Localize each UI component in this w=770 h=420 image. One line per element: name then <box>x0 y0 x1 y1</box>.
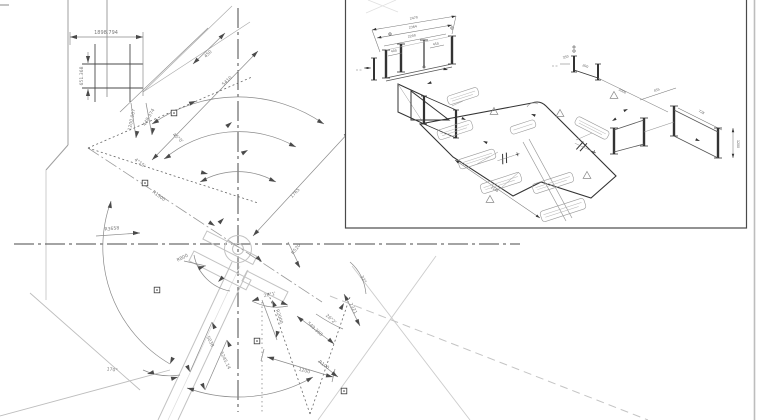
dim-label-2321: 2321 <box>347 302 358 315</box>
radius-label-2000: R2000 <box>274 309 284 325</box>
dim-label-height: 651.368 <box>79 66 85 85</box>
iso-inset-panel: 2470 2364 2200 400 450 2000 1148 1200 45… <box>346 0 747 228</box>
dim-label-1200-007: 1200.007 <box>127 108 137 131</box>
angle-label-32: 32° <box>358 275 367 285</box>
anchor-plate-detail <box>82 44 143 102</box>
radius-label-1500: R1500 <box>151 189 167 203</box>
dim-label-1200: 1200 <box>298 367 311 376</box>
structure-outline <box>46 0 107 300</box>
dim-label-5245: 5245.14 <box>218 351 232 371</box>
radius-label-520: R520 <box>290 243 302 256</box>
iso-dim-1200: 1200 <box>736 140 740 148</box>
dimension-lines <box>70 32 366 397</box>
dim-label-5038: 5038 <box>205 335 216 348</box>
dim-label-5410: 5410 <box>221 75 234 87</box>
dim-label-width: 1898.794 <box>94 30 118 36</box>
drawing-svg: 1898.794 651.368 450 5410 1200.007 448.3… <box>0 0 770 420</box>
cad-drawing-viewport[interactable]: 1898.794 651.368 450 5410 1200.007 448.3… <box>0 0 770 420</box>
angle-label-170: 170° <box>106 366 118 373</box>
dim-label-450: 450 <box>203 49 214 59</box>
radius-label-3658: R3658 <box>104 225 120 233</box>
angle-label-26-2: 26°2' <box>324 313 337 326</box>
angle-label-4-15: 4°15' <box>133 157 146 169</box>
dim-label-549: 549.368 <box>306 321 324 338</box>
inset-border <box>346 0 747 228</box>
dim-label-448-374: 448.374 <box>142 108 157 128</box>
dim-label-1765: 1765 <box>289 187 301 200</box>
